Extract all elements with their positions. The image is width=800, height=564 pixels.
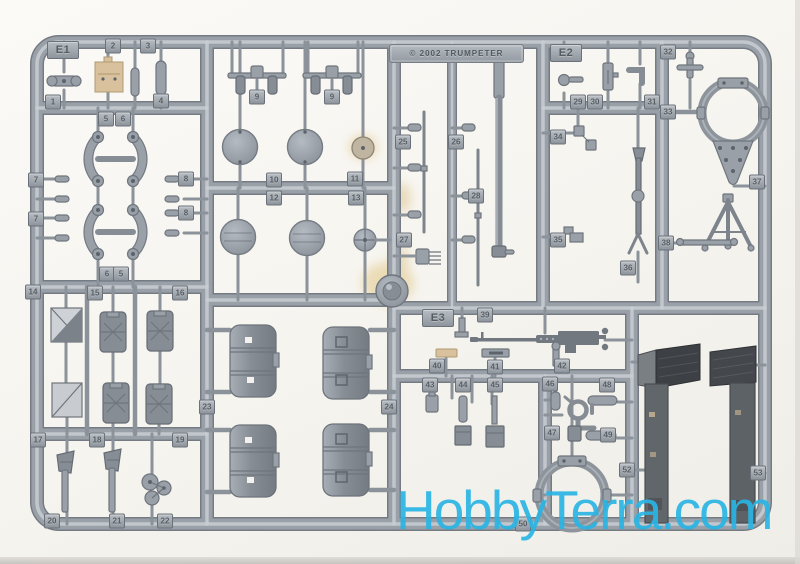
tow-hook-part: [228, 42, 286, 94]
diamond-plate-box: [51, 308, 82, 342]
copyright-plaque: © 2002 TRUMPETER: [389, 44, 524, 63]
folding-shovel-part: [57, 451, 74, 512]
rod-part-38: [662, 239, 738, 246]
sprue-photo: 2314569977881011121365252628272930313233…: [0, 0, 800, 564]
light-cluster-part: [142, 474, 171, 505]
dome-part: [376, 275, 408, 307]
periscope-part: [486, 396, 504, 447]
hatch-disc-part: [221, 220, 256, 255]
oil-drum-section: [207, 325, 394, 497]
tow-hook-part: [303, 42, 361, 94]
hatch-disc-part: [288, 130, 323, 165]
elbow-pipe-part: [629, 70, 642, 83]
oil-drum-part: [323, 424, 372, 496]
tool-parts: [57, 434, 171, 524]
slotted-plate-part: [482, 349, 509, 357]
ring-mount-part: [662, 78, 769, 185]
pill-part: [156, 61, 166, 95]
small-wheel-part: [354, 229, 390, 251]
gun-barrel-part: [492, 50, 514, 257]
diamond-plate-box: [52, 383, 82, 417]
wing-bolt-part: [677, 52, 703, 78]
muffler-pipe-part: [588, 396, 617, 413]
slotted-plate-part: [603, 63, 618, 90]
copyright-text: © 2002 TRUMPETER: [410, 49, 504, 58]
bottle-part: [426, 389, 438, 412]
oil-drum-part: [323, 327, 372, 399]
hatch-disc-part: [290, 221, 325, 256]
cylinder-part: [551, 392, 560, 410]
folding-shovel-part: [104, 449, 121, 512]
photo-bottom-edge: [0, 557, 800, 564]
jerry-can-section: [51, 287, 173, 434]
tan-plate-part: [436, 349, 457, 357]
watermark-text: HobbyTerra.com: [396, 483, 771, 538]
mg34-machine-gun-part: [629, 108, 647, 282]
periscope-part: [455, 396, 471, 445]
photo-right-edge: [795, 0, 800, 564]
e1-top-parts: [47, 42, 166, 108]
pill-part: [131, 68, 139, 96]
oil-drum-part: [230, 325, 279, 397]
mount-post-part: [552, 342, 560, 366]
bracket-part-39: [455, 318, 468, 337]
bolt-part: [559, 75, 584, 86]
e1-bracket-parts: [37, 108, 207, 287]
hatch-disc-section: [221, 42, 391, 300]
photo-etch-square-part: [95, 57, 123, 92]
oil-drum-part: [230, 425, 279, 497]
hatch-disc-part: [223, 130, 258, 165]
